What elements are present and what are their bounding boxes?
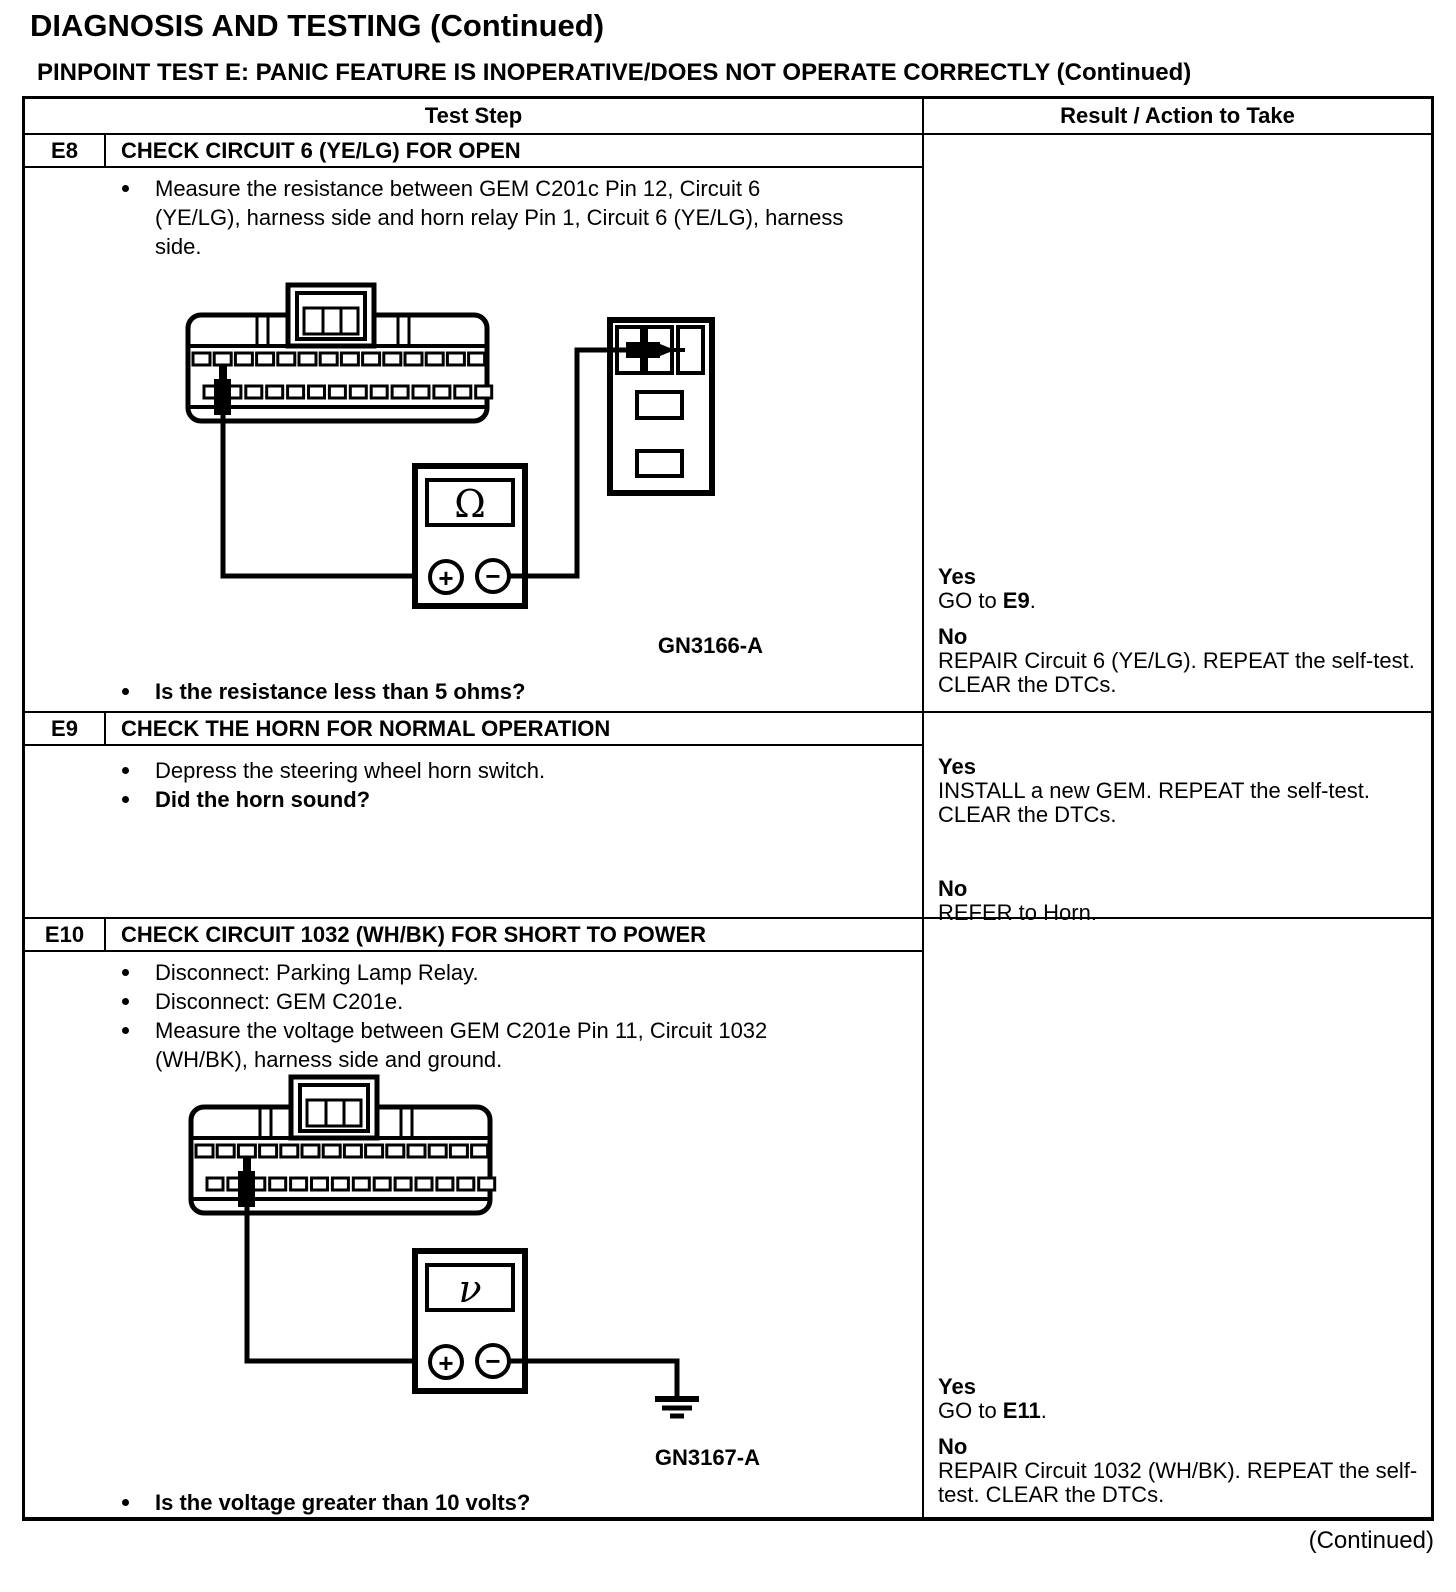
bullet-icon bbox=[122, 1027, 129, 1034]
no-result: No REPAIR Circuit 1032 (WH/BK). REPEAT t… bbox=[938, 1435, 1427, 1507]
test-content-e9: Depress the steering wheel horn switch. … bbox=[25, 746, 922, 917]
wiring-diagram-gn3167: ν + − GN3167-A bbox=[25, 1074, 922, 1470]
bullet-icon bbox=[122, 998, 129, 1005]
yes-action: GO to E9. bbox=[938, 589, 1427, 613]
question-text: Did the horn sound? bbox=[129, 785, 849, 814]
ohm-symbol: Ω bbox=[454, 482, 486, 526]
step-item: Measure the resistance between GEM C201c… bbox=[25, 174, 922, 261]
bullet-icon bbox=[122, 796, 129, 803]
test-ref: E11 bbox=[1003, 1398, 1041, 1423]
result-cell-e10: Yes GO to E11. No REPAIR Circuit 1032 (W… bbox=[924, 919, 1431, 1517]
yes-action: INSTALL a new GEM. REPEAT the self-test.… bbox=[938, 779, 1427, 827]
plus-sign: + bbox=[438, 563, 453, 593]
question-text: Is the resistance less than 5 ohms? bbox=[129, 677, 849, 706]
continued-label: (Continued) bbox=[0, 1528, 1434, 1554]
no-label: No bbox=[938, 877, 1427, 901]
multimeter-ohmmeter: Ω + − bbox=[415, 466, 525, 606]
result-cell-e9: Yes INSTALL a new GEM. REPEAT the self-t… bbox=[924, 713, 1431, 917]
figure-label: GN3166-A bbox=[658, 633, 763, 658]
page-subtitle: PINPOINT TEST E: PANIC FEATURE IS INOPER… bbox=[37, 59, 1456, 87]
test-content-e10: Disconnect: Parking Lamp Relay. Disconne… bbox=[25, 952, 922, 1517]
no-action: REPAIR Circuit 6 (YE/LG). REPEAT the sel… bbox=[938, 649, 1427, 697]
test-title-e10: CHECK CIRCUIT 1032 (WH/BK) FOR SHORT TO … bbox=[106, 919, 706, 950]
volt-symbol: ν bbox=[458, 1267, 481, 1311]
plus-sign: + bbox=[438, 1348, 453, 1378]
test-block-e8: E8 CHECK CIRCUIT 6 (YE/LG) FOR OPEN Meas… bbox=[25, 135, 1431, 711]
test-lead-wire bbox=[223, 413, 430, 576]
yes-result: Yes GO to E11. bbox=[938, 1375, 1427, 1423]
pinpoint-test-table: Test Step Result / Action to Take E8 CHE… bbox=[22, 96, 1434, 1521]
question-item: Is the resistance less than 5 ohms? bbox=[25, 677, 922, 706]
result-cell-e8: Yes GO to E9. No REPAIR Circuit 6 (YE/LG… bbox=[924, 135, 1431, 711]
bullet-icon bbox=[122, 1499, 129, 1506]
test-title-row-e8: E8 CHECK CIRCUIT 6 (YE/LG) FOR OPEN bbox=[25, 135, 922, 168]
yes-action: GO to E11. bbox=[938, 1399, 1427, 1423]
yes-result: Yes GO to E9. bbox=[938, 565, 1427, 613]
question-text: Is the voltage greater than 10 volts? bbox=[129, 1488, 849, 1517]
question-item: Is the voltage greater than 10 volts? bbox=[25, 1488, 922, 1517]
test-id-e10: E10 bbox=[25, 919, 106, 950]
bullet-icon bbox=[122, 969, 129, 976]
test-lead-wire bbox=[509, 1361, 677, 1397]
no-result: No REPAIR Circuit 6 (YE/LG). REPEAT the … bbox=[938, 625, 1427, 697]
question-item: Did the horn sound? bbox=[25, 785, 922, 814]
no-label: No bbox=[938, 1435, 1427, 1459]
test-title-e9: CHECK THE HORN FOR NORMAL OPERATION bbox=[106, 713, 610, 744]
test-title-e8: CHECK CIRCUIT 6 (YE/LG) FOR OPEN bbox=[106, 135, 521, 166]
test-ref: E9 bbox=[1003, 588, 1030, 613]
bullet-icon bbox=[122, 688, 129, 695]
test-lead-wire bbox=[247, 1205, 430, 1361]
step-text: Depress the steering wheel horn switch. bbox=[129, 756, 849, 785]
table-header-row: Test Step Result / Action to Take bbox=[25, 99, 1431, 135]
test-content-e8: Measure the resistance between GEM C201c… bbox=[25, 168, 922, 711]
bullet-icon bbox=[122, 767, 129, 774]
yes-result: Yes INSTALL a new GEM. REPEAT the self-t… bbox=[938, 755, 1427, 827]
gem-connector bbox=[188, 285, 492, 421]
step-item: Disconnect: Parking Lamp Relay. bbox=[25, 958, 922, 987]
multimeter-voltmeter: ν + − bbox=[415, 1251, 525, 1391]
step-item: Disconnect: GEM C201e. bbox=[25, 987, 922, 1016]
yes-label: Yes bbox=[938, 1375, 1427, 1399]
ground-icon bbox=[655, 1399, 699, 1416]
test-step-cell-e10: E10 CHECK CIRCUIT 1032 (WH/BK) FOR SHORT… bbox=[25, 919, 924, 1517]
step-text: Disconnect: GEM C201e. bbox=[129, 987, 849, 1016]
page-title: DIAGNOSIS AND TESTING (Continued) bbox=[30, 8, 1456, 44]
test-step-cell-e9: E9 CHECK THE HORN FOR NORMAL OPERATION D… bbox=[25, 713, 924, 917]
test-step-cell-e8: E8 CHECK CIRCUIT 6 (YE/LG) FOR OPEN Meas… bbox=[25, 135, 924, 711]
test-id-e9: E9 bbox=[25, 713, 106, 744]
test-block-e9: E9 CHECK THE HORN FOR NORMAL OPERATION D… bbox=[25, 711, 1431, 917]
test-title-row-e9: E9 CHECK THE HORN FOR NORMAL OPERATION bbox=[25, 713, 922, 746]
step-text: Disconnect: Parking Lamp Relay. bbox=[129, 958, 849, 987]
test-title-row-e10: E10 CHECK CIRCUIT 1032 (WH/BK) FOR SHORT… bbox=[25, 919, 922, 952]
step-item: Depress the steering wheel horn switch. bbox=[25, 756, 922, 785]
minus-sign: − bbox=[485, 561, 500, 591]
test-id-e8: E8 bbox=[25, 135, 106, 166]
step-text: Measure the resistance between GEM C201c… bbox=[129, 174, 849, 261]
figure-label: GN3167-A bbox=[655, 1445, 760, 1470]
yes-label: Yes bbox=[938, 565, 1427, 589]
gem-connector bbox=[191, 1077, 495, 1213]
yes-label: Yes bbox=[938, 755, 1427, 779]
step-text: Measure the voltage between GEM C201e Pi… bbox=[129, 1016, 849, 1074]
column-header-test-step: Test Step bbox=[25, 99, 924, 133]
no-label: No bbox=[938, 625, 1427, 649]
wiring-diagram-gn3166: Ω + − bbox=[25, 261, 922, 661]
no-result: No REFER to Horn. bbox=[938, 877, 1427, 925]
step-item: Measure the voltage between GEM C201e Pi… bbox=[25, 1016, 922, 1074]
minus-sign: − bbox=[485, 1346, 500, 1376]
no-action: REPAIR Circuit 1032 (WH/BK). REPEAT the … bbox=[938, 1459, 1427, 1507]
test-block-e10: E10 CHECK CIRCUIT 1032 (WH/BK) FOR SHORT… bbox=[25, 917, 1431, 1517]
column-header-result: Result / Action to Take bbox=[924, 99, 1431, 133]
bullet-icon bbox=[122, 185, 129, 192]
